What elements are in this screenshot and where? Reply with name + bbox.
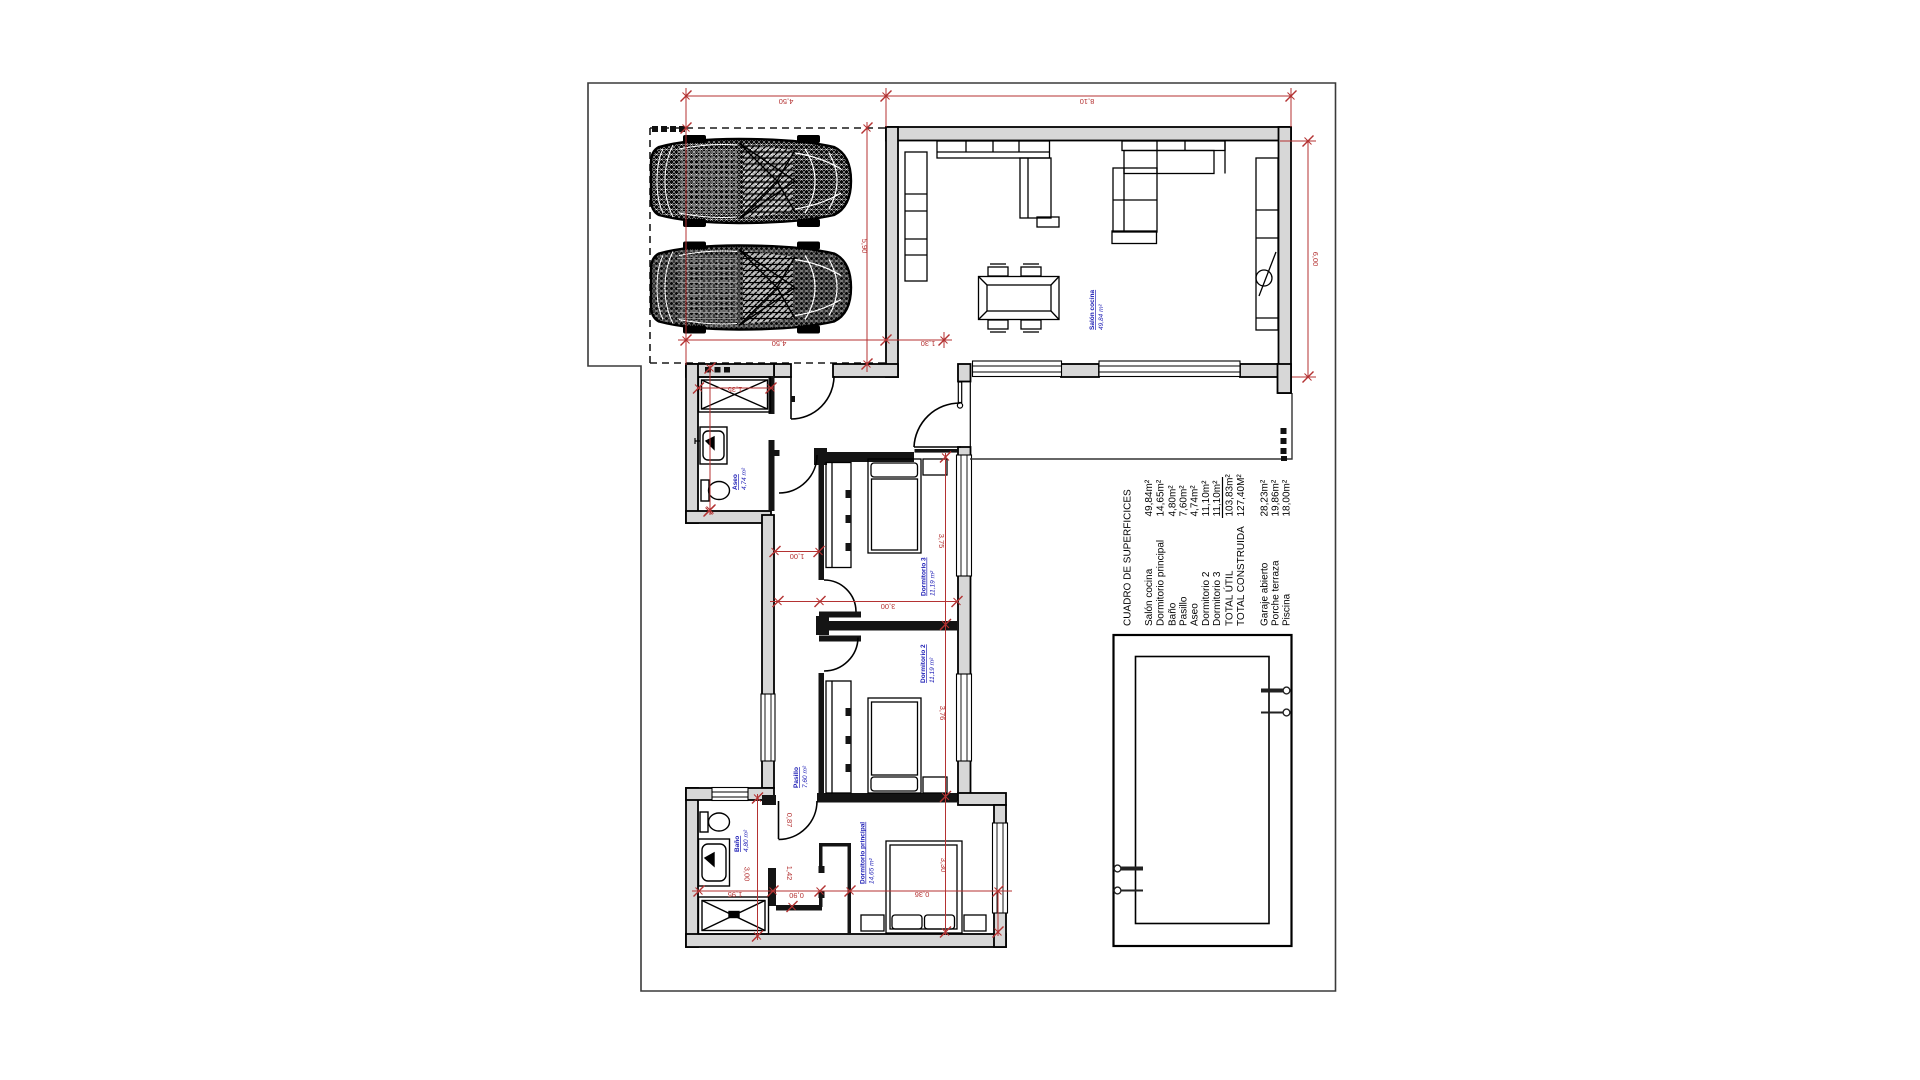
svg-text:4,50: 4,50 bbox=[772, 339, 787, 348]
svg-text:3,00: 3,00 bbox=[743, 867, 752, 882]
svg-text:14,65m²: 14,65m² bbox=[1156, 479, 1167, 516]
svg-text:Dormitorio 3: Dormitorio 3 bbox=[1212, 571, 1223, 626]
svg-text:7,60m²: 7,60m² bbox=[1179, 485, 1190, 517]
svg-text:4,74m²: 4,74m² bbox=[1190, 485, 1201, 517]
svg-text:Porche terraza: Porche terraza bbox=[1271, 560, 1282, 626]
svg-text:TOTAL ÚTIL: TOTAL ÚTIL bbox=[1223, 570, 1236, 626]
svg-text:Salón cocina: Salón cocina bbox=[1144, 568, 1155, 626]
svg-text:4,74 m²: 4,74 m² bbox=[741, 467, 748, 490]
svg-text:1,42: 1,42 bbox=[785, 866, 794, 881]
svg-text:11,10m²: 11,10m² bbox=[1201, 480, 1212, 517]
svg-text:8,10: 8,10 bbox=[1080, 97, 1095, 106]
svg-text:Pasillo: Pasillo bbox=[793, 767, 800, 788]
svg-text:14,65 m²: 14,65 m² bbox=[869, 858, 876, 884]
svg-text:Aseo: Aseo bbox=[1190, 603, 1201, 626]
svg-text:Garaje abierto: Garaje abierto bbox=[1260, 562, 1271, 626]
svg-text:11,19 m²: 11,19 m² bbox=[930, 570, 937, 596]
svg-text:7,60 m²: 7,60 m² bbox=[802, 765, 809, 788]
svg-text:Aseo: Aseo bbox=[732, 474, 739, 490]
svg-text:Piscina: Piscina bbox=[1282, 593, 1293, 626]
svg-text:3,75: 3,75 bbox=[937, 534, 946, 549]
svg-text:49,84 m²: 49,84 m² bbox=[1098, 304, 1105, 330]
svg-text:1,00: 1,00 bbox=[790, 552, 805, 561]
svg-text:18,00m²: 18,00m² bbox=[1282, 479, 1293, 516]
svg-text:Pasillo: Pasillo bbox=[1179, 596, 1190, 626]
svg-text:49,84m²: 49,84m² bbox=[1144, 479, 1155, 516]
svg-text:Dormitorio principal: Dormitorio principal bbox=[1156, 540, 1167, 626]
svg-text:1,95: 1,95 bbox=[728, 890, 743, 899]
svg-text:4,80 m²: 4,80 m² bbox=[743, 829, 750, 852]
svg-text:19,86m²: 19,86m² bbox=[1271, 479, 1282, 516]
svg-text:0,90: 0,90 bbox=[789, 891, 804, 900]
svg-text:28,23m²: 28,23m² bbox=[1260, 479, 1271, 516]
svg-text:0,36: 0,36 bbox=[915, 890, 930, 899]
svg-text:6,00: 6,00 bbox=[1311, 252, 1320, 267]
svg-text:4,80m²: 4,80m² bbox=[1168, 485, 1179, 517]
svg-text:Dormitorio 3: Dormitorio 3 bbox=[921, 557, 928, 596]
svg-text:Dormitorio 2: Dormitorio 2 bbox=[920, 644, 927, 683]
svg-text:CUADRO DE SUPERFICICES: CUADRO DE SUPERFICICES bbox=[1123, 489, 1134, 626]
svg-text:1,30: 1,30 bbox=[921, 339, 936, 348]
svg-text:3,00: 3,00 bbox=[881, 602, 896, 611]
svg-text:127,40M²: 127,40M² bbox=[1236, 474, 1247, 517]
svg-text:Salón cocina: Salón cocina bbox=[1089, 290, 1096, 330]
svg-text:3,76: 3,76 bbox=[938, 706, 947, 721]
svg-text:TOTAL CONSTRUIDA: TOTAL CONSTRUIDA bbox=[1236, 526, 1247, 626]
svg-text:Baño: Baño bbox=[734, 836, 741, 852]
svg-text:0,87: 0,87 bbox=[785, 813, 794, 828]
svg-text:1,35: 1,35 bbox=[728, 385, 743, 394]
svg-text:Dormitorio principal: Dormitorio principal bbox=[860, 822, 867, 884]
svg-text:11,10m²: 11,10m² bbox=[1212, 480, 1223, 517]
svg-text:Baño: Baño bbox=[1168, 602, 1179, 626]
svg-text:Dormitorio 2: Dormitorio 2 bbox=[1201, 571, 1212, 626]
svg-text:103,83m²: 103,83m² bbox=[1225, 474, 1236, 517]
svg-text:11,19 m²: 11,19 m² bbox=[929, 657, 936, 683]
svg-text:5,90: 5,90 bbox=[860, 239, 869, 254]
svg-text:3,30: 3,30 bbox=[939, 858, 948, 873]
svg-text:4,50: 4,50 bbox=[779, 97, 794, 106]
